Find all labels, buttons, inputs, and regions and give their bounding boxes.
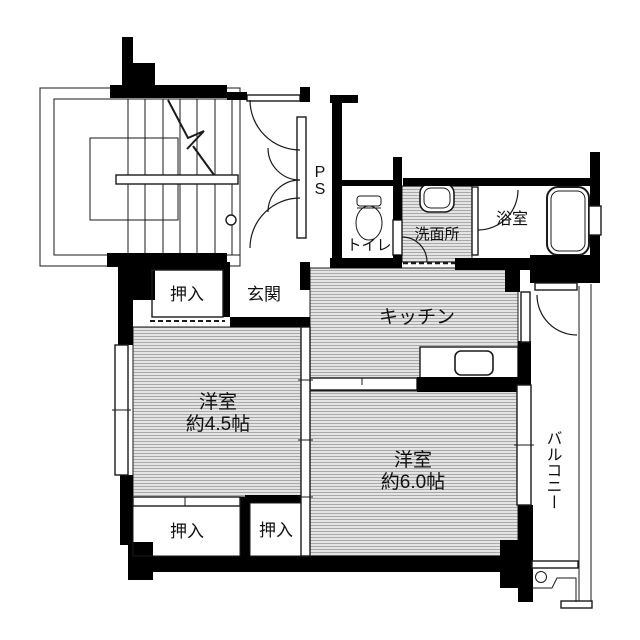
bathroom-door — [472, 187, 478, 255]
balcony-label: バルコニー — [544, 430, 562, 510]
room-divider-sliding — [301, 327, 310, 556]
kitchen-sink-icon — [455, 351, 493, 375]
balcony-divider — [532, 561, 578, 568]
kitchen-balcony-door-leaf — [521, 292, 530, 342]
wall-bottom — [150, 556, 502, 572]
room45-size-label: 約4.5帖 — [186, 413, 250, 435]
room60-name-label: 洋室 — [394, 449, 432, 471]
balcony-rail-bottom — [561, 601, 592, 608]
closet-upper-label: 押入 — [170, 285, 204, 304]
room45-name-label: 洋室 — [199, 391, 237, 413]
entry-doorway-frame — [247, 95, 300, 101]
hall-closet-front — [297, 117, 306, 238]
bathroom-label: 浴室 — [496, 210, 528, 228]
floorplan-drawing: PS トイレ 洗面所 浴室 キッチン 玄関 押入 押入 押入 洋室 約4.5帖 … — [0, 0, 640, 640]
closet-lower-left-label: 押入 — [170, 522, 204, 541]
bathroom-window — [589, 206, 601, 235]
ps-label: PS — [312, 164, 329, 198]
balcony-door-frame — [535, 283, 577, 290]
closet-lower-right-label: 押入 — [259, 521, 293, 540]
room60-size-label: 約6.0帖 — [381, 471, 445, 493]
toilet-label: トイレ — [346, 237, 391, 254]
kitchen-room60-sliding-door — [310, 378, 417, 390]
sink-icon — [420, 184, 454, 212]
kitchen-label: キッチン — [379, 307, 455, 328]
stair-post-circle — [226, 215, 236, 225]
floorplan-page: PS トイレ 洗面所 浴室 キッチン 玄関 押入 押入 押入 洋室 約4.5帖 … — [0, 0, 640, 640]
closet-left-fusuma — [133, 497, 240, 506]
wall-right-outer-upper — [590, 152, 600, 208]
washroom-label: 洗面所 — [414, 226, 459, 243]
stair-landing-bar — [116, 175, 238, 184]
bathtub-icon — [547, 187, 589, 255]
wall-ps-right — [332, 95, 342, 262]
entrance-label: 玄関 — [247, 285, 281, 304]
toilet-door — [393, 220, 402, 255]
